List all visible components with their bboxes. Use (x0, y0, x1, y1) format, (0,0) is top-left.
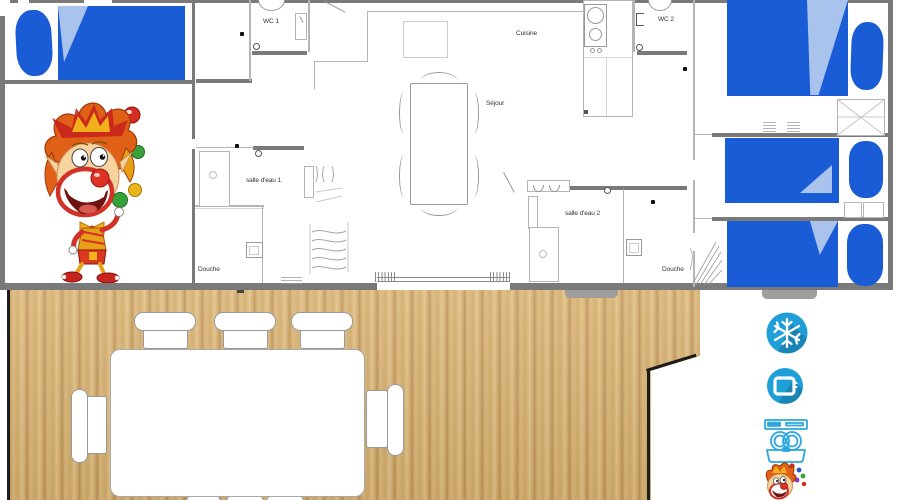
socket-dot (683, 67, 687, 71)
room-label-shower-right: Douche (662, 266, 684, 273)
annotation-scribble (763, 122, 776, 132)
wall-bottom (0, 283, 377, 290)
pillow (849, 141, 883, 198)
nightstand (863, 202, 884, 218)
partition-line (314, 61, 315, 89)
counter-line (584, 57, 632, 58)
wall-wc2 (637, 51, 687, 55)
terrace-chair (214, 312, 276, 331)
partition-line (367, 11, 368, 62)
partition-line (693, 53, 695, 160)
deck-edge (647, 369, 650, 500)
bed-single-middle (725, 138, 839, 203)
juggling-clown-illustration (28, 88, 163, 283)
chair-arc (469, 155, 479, 197)
chair-arc (420, 206, 458, 216)
window-gap (18, 0, 29, 3)
chair-arc (420, 72, 458, 82)
partition-line (633, 0, 635, 52)
partition-line (195, 208, 264, 209)
wall-bedroom-left (4, 80, 193, 84)
partition-line (249, 0, 251, 52)
door-symbol (636, 44, 643, 51)
clown-mascot-icon (762, 461, 810, 500)
room-label-kitchen: Cuisine (516, 30, 537, 37)
terrace-chair (143, 328, 188, 349)
partition-line (693, 180, 695, 233)
wardrobe-sketch (302, 162, 352, 284)
tv-icon (766, 367, 804, 405)
dining-table (410, 83, 468, 205)
dishwasher-icon (762, 419, 810, 463)
terrace-chair (71, 389, 88, 463)
wall-wc1 (252, 51, 307, 55)
wall-corridor (196, 79, 252, 83)
burner (587, 7, 604, 24)
window-gap (84, 0, 112, 3)
deck-edge (7, 290, 10, 500)
partition-line (314, 61, 368, 62)
partition-line (694, 218, 712, 219)
toilet (258, 0, 285, 11)
shower-stall (199, 151, 230, 207)
terrace-chair (300, 328, 345, 349)
entrance-step (565, 290, 618, 298)
room-label-living: Séjour (486, 100, 504, 107)
room-label-shower-left: Douche (198, 266, 220, 273)
shower-hatch (688, 240, 724, 287)
counter-line (606, 58, 607, 116)
terrace-chair (366, 390, 388, 448)
terrace-chair (85, 396, 107, 454)
wardrobe-cross (837, 99, 885, 136)
washing-machine-door (629, 243, 639, 253)
wall-left (0, 16, 5, 290)
partition-line (623, 189, 624, 283)
annotation-scribble (787, 122, 800, 132)
room-label-bathroom2: salle d'eau 2 (565, 210, 600, 217)
socket-dot (651, 200, 655, 204)
curtain-ticks (490, 272, 510, 282)
partition-line (693, 0, 695, 53)
washing-machine-door (249, 246, 259, 255)
room-label-wc2: WC 2 (658, 16, 674, 23)
annotation-scribble (281, 276, 302, 284)
nightstand (844, 202, 862, 218)
room-label-bathroom1: salle d'eau 1 (246, 177, 281, 184)
terrace-chair (223, 328, 268, 349)
floorplan-page: WC 1 WC 2 Cuisine Séjour salle d'eau 1 s… (0, 0, 900, 500)
socket-dot (240, 32, 244, 36)
door-leaf (503, 172, 515, 193)
wall-vertical-left (192, 149, 195, 283)
chair-arc (469, 92, 479, 134)
partition-line (694, 134, 712, 135)
pillow (850, 21, 884, 90)
socket-dot (235, 144, 239, 148)
wall-right (888, 0, 893, 290)
shower-drain (209, 171, 217, 179)
terrace-chair (291, 312, 353, 331)
partition-line (367, 11, 584, 12)
partition-line (308, 0, 310, 52)
terrace-chair (387, 384, 404, 456)
wall-vertical-left (192, 0, 195, 139)
burner (589, 28, 602, 41)
partition-line (196, 147, 254, 148)
room-label-wc1: WC 1 (263, 18, 279, 25)
terrace-chair (134, 312, 196, 331)
door-symbol (255, 150, 262, 157)
sink (590, 48, 595, 53)
curtain-ticks (375, 272, 395, 282)
counter-mark (584, 110, 588, 114)
door-jamb (636, 13, 644, 26)
wall-bathroom2 (566, 186, 687, 190)
terrace-table (110, 349, 365, 497)
chair-arc (399, 92, 409, 134)
toilet (648, 0, 672, 11)
door-symbol (604, 187, 611, 194)
door-symbol (253, 43, 260, 50)
threshold-mark (237, 290, 244, 293)
shower-drain (539, 250, 547, 258)
partition-line (249, 52, 251, 81)
air-conditioning-icon (765, 311, 809, 355)
wall-bathroom1 (253, 146, 304, 150)
entrance-step (762, 290, 817, 299)
chair-arc (399, 155, 409, 197)
sink (597, 48, 602, 53)
pillow (847, 224, 883, 286)
pillow (14, 9, 53, 77)
low-table (403, 21, 448, 58)
cabinet (528, 196, 538, 229)
